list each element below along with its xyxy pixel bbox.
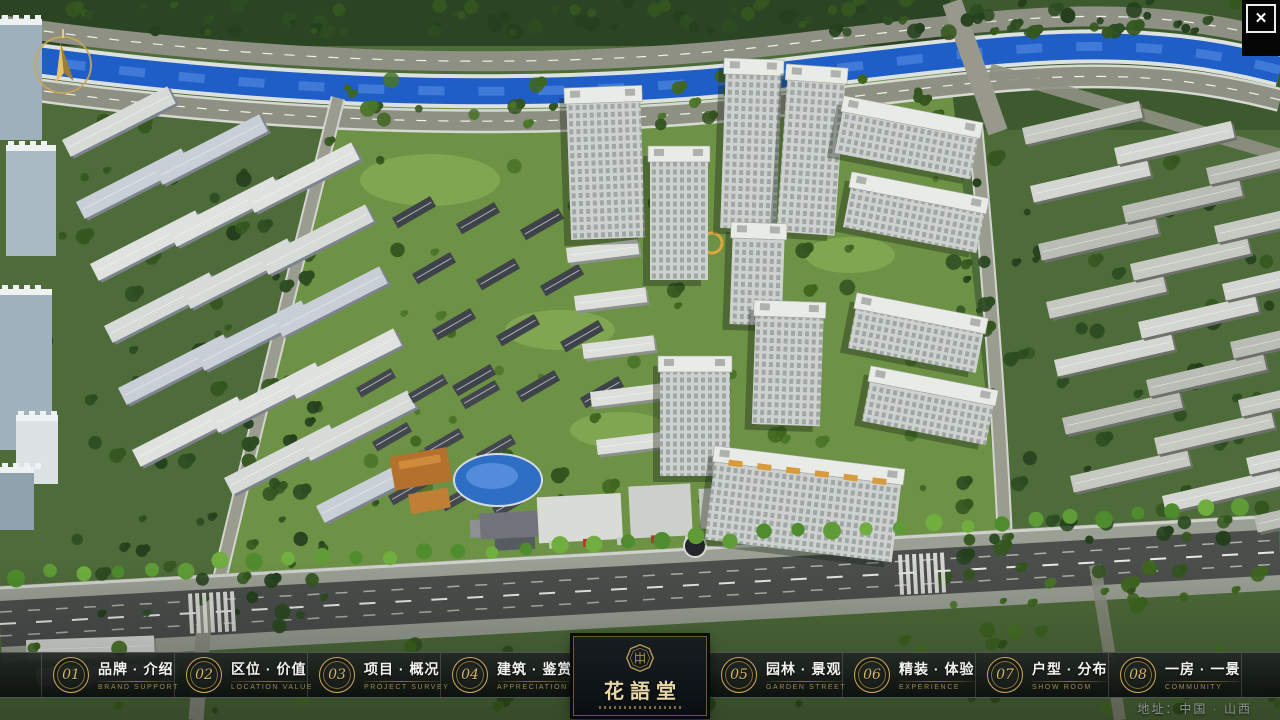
nav-item-floorplan[interactable]: 07 户型 · 分布 SHOW ROOM (976, 653, 1109, 697)
nav-sublabel: COMMUNITY (1165, 684, 1240, 691)
number-badge-03-icon: 03 (319, 657, 355, 693)
label-divider (231, 681, 307, 682)
project-logo-panel[interactable]: 花語堂 (573, 636, 707, 716)
label-divider (497, 681, 572, 682)
nav-item-architecture[interactable]: 04 建筑 · 鉴赏 APPRECIATION (441, 653, 574, 697)
number-badge-04-icon: 04 (452, 657, 488, 693)
nav-label: 品牌 · 介绍 (98, 659, 174, 679)
project-title: 花語堂 (598, 675, 682, 704)
nav-sublabel: SHOW ROOM (1032, 684, 1107, 691)
nav-label: 精装 · 体验 (899, 659, 974, 679)
masterplan-presentation: ✕ 01 品牌 · 介绍 BRAND SUPPORT 02 区位 · 价值 LO… (0, 0, 1280, 720)
nav-item-decoration[interactable]: 06 精装 · 体验 EXPERIENCE (843, 653, 976, 697)
nav-label: 项目 · 概况 (364, 659, 440, 679)
number-badge-02-icon: 02 (186, 657, 222, 693)
nav-sublabel: BRAND SUPPORT (98, 684, 174, 691)
nav-item-brand[interactable]: 01 品牌 · 介绍 BRAND SUPPORT (42, 653, 175, 697)
nav-label: 园林 · 景观 (766, 659, 842, 679)
nav-label: 户型 · 分布 (1032, 659, 1107, 679)
nav-sublabel: EXPERIENCE (899, 684, 974, 691)
nav-item-garden[interactable]: 05 园林 · 景观 GARDEN STREET (710, 653, 843, 697)
brand-seal-icon (625, 643, 655, 673)
number-badge-05-icon: 05 (721, 657, 757, 693)
nav-label: 一房 · 一景 (1165, 659, 1240, 679)
label-divider (766, 681, 842, 682)
north-arrow-icon (34, 36, 92, 94)
project-tagline-text (599, 706, 681, 709)
number-badge-08-icon: 08 (1120, 657, 1156, 693)
nav-spacer-left (0, 653, 42, 697)
close-icon[interactable]: ✕ (1246, 4, 1276, 33)
number-badge-01-icon: 01 (53, 657, 89, 693)
nav-label: 建筑 · 鉴赏 (497, 659, 572, 679)
nav-item-views[interactable]: 08 一房 · 一景 COMMUNITY (1109, 653, 1242, 697)
nav-sublabel: LOCATION VALUE (231, 684, 307, 691)
label-divider (899, 681, 974, 682)
nav-spacer-right (1242, 653, 1280, 697)
number-badge-06-icon: 06 (854, 657, 890, 693)
label-divider (1165, 681, 1240, 682)
nav-sublabel: APPRECIATION (497, 684, 572, 691)
nav-item-location[interactable]: 02 区位 · 价值 LOCATION VALUE (175, 653, 308, 697)
masterplan-render (0, 0, 1280, 720)
compass-icon (34, 36, 92, 94)
label-divider (1032, 681, 1107, 682)
label-divider (98, 681, 174, 682)
nav-sublabel: GARDEN STREET (766, 684, 842, 691)
nav-item-project[interactable]: 03 项目 · 概况 PROJECT SURVEY (308, 653, 441, 697)
project-address: 地址：中国 · 山西 (1137, 700, 1252, 717)
nav-sublabel: PROJECT SURVEY (364, 684, 440, 691)
number-badge-07-icon: 07 (987, 657, 1023, 693)
close-button[interactable]: ✕ (1242, 0, 1280, 56)
nav-label: 区位 · 价值 (231, 659, 307, 679)
label-divider (364, 681, 440, 682)
